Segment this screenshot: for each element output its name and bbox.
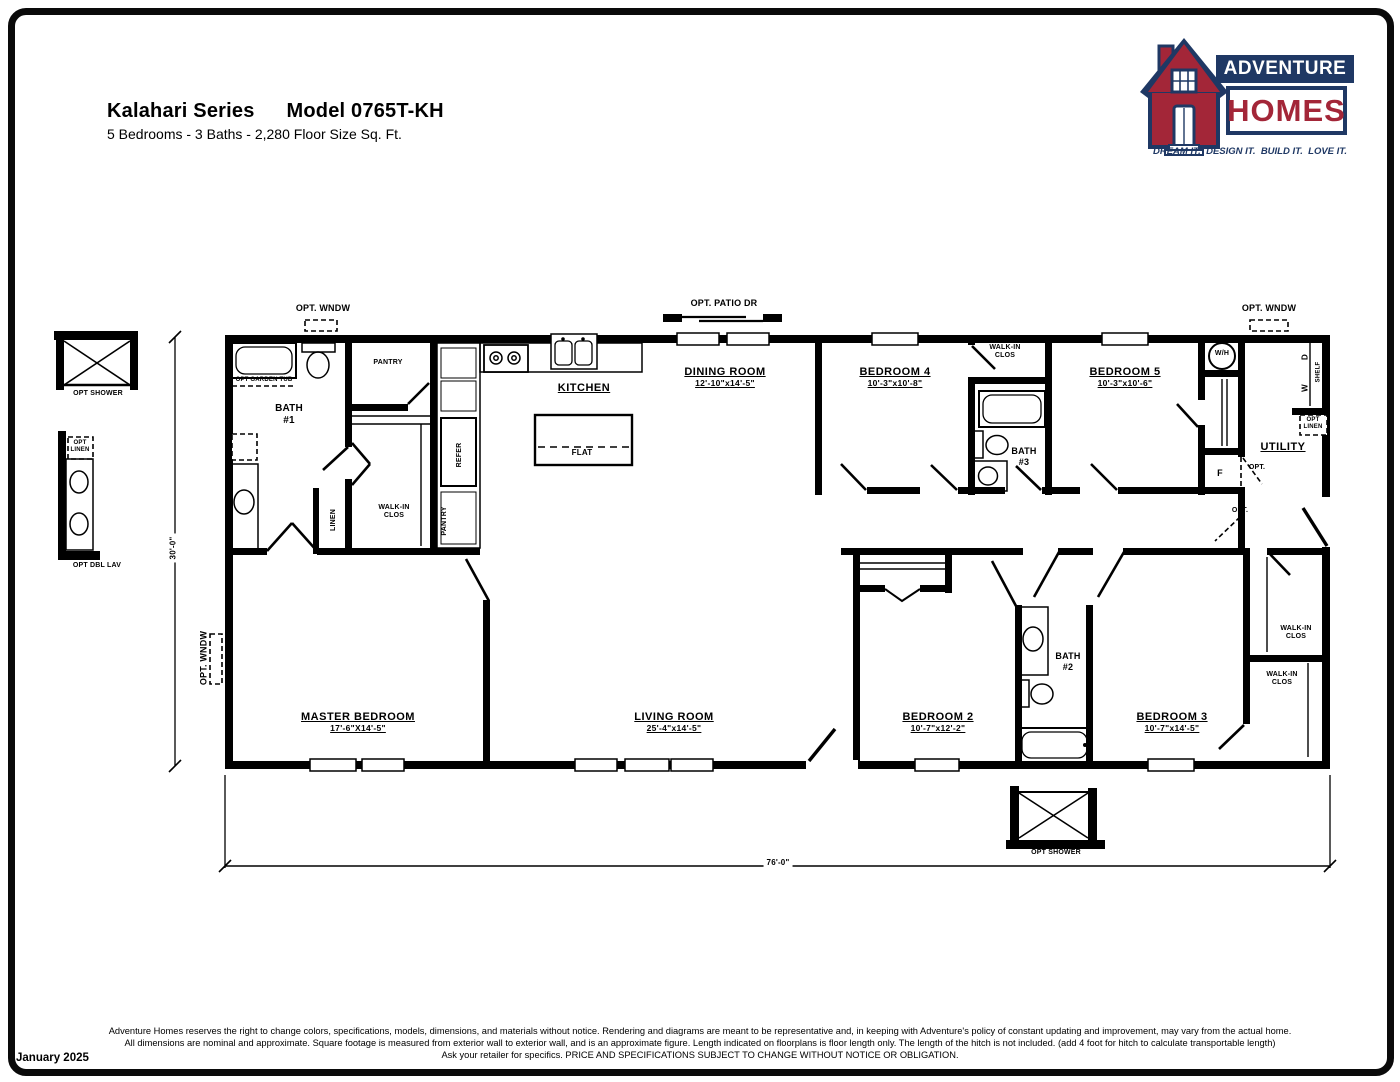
pantry-vertical-label: PANTRY: [441, 506, 449, 535]
opt-shower-bottom-label: OPT SHOWER: [1031, 849, 1081, 857]
opt-wndw-label-top-right: OPT. WNDW: [1242, 303, 1296, 314]
walkin-clos-bed4-label: WALK-IN CLOS: [989, 344, 1020, 361]
bedroom3-label: BEDROOM 3 10'-7"x14'-5": [1136, 711, 1207, 733]
bedroom4-label: BEDROOM 4 10'-3"x10'-8": [859, 366, 930, 388]
depth-dimension-label: 30'-0": [168, 534, 177, 563]
kitchen-fixtures: [437, 334, 642, 548]
opt-linen-utility-label: OPT LINEN: [1304, 417, 1323, 431]
opt-dbl-lav-label: OPT DBL LAV: [73, 562, 121, 570]
flat-island-label: FLAT: [572, 448, 593, 457]
opt-linen-left-label: OPT LINEN: [71, 440, 90, 454]
patio-door-symbol: [663, 314, 782, 322]
tub3-icon: [979, 391, 1045, 427]
opt-wndw-label-top-left: OPT. WNDW: [296, 303, 350, 314]
shelf-label: SHELF: [1315, 362, 1322, 383]
pantry-label: PANTRY: [373, 359, 402, 367]
width-dimension-label: 76'-0": [764, 858, 793, 867]
bedroom2-label: BEDROOM 2 10'-7"x12'-2": [902, 711, 973, 733]
kitchen-sink-icon: [551, 334, 597, 369]
utility-label: UTILITY: [1260, 441, 1305, 453]
walkin-clos-upper-label: WALK-IN CLOS: [1280, 625, 1311, 642]
tub2-icon: [1018, 728, 1091, 762]
walkin-clos-master-label: WALK-IN CLOS: [378, 504, 409, 521]
opt-garden-tub-label: OPT GARDEN TUB: [236, 377, 293, 384]
living-room-label: LIVING ROOM 25'-4"x14'-5": [634, 711, 713, 733]
dining-room-label: DINING ROOM 12'-10"x14'-5": [684, 366, 765, 388]
dryer-label: D: [1300, 354, 1309, 360]
opt-patio-door-label: OPT. PATIO DR: [691, 298, 758, 309]
island-icon: [535, 415, 632, 465]
revision-date: January 2025: [16, 1052, 89, 1064]
dbl-lav-icon: [66, 459, 93, 550]
bath3-label: BATH #3: [1011, 446, 1036, 467]
toilet1-icon: [302, 343, 335, 352]
furnace-label: F: [1217, 468, 1223, 479]
bedroom5-label: BEDROOM 5 10'-3"x10'-6": [1089, 366, 1160, 388]
bath1-label: BATH #1: [275, 403, 303, 427]
floorplan-drawing: [0, 0, 1400, 1082]
disclaimer-line3: Ask your retailer for specifics. PRICE A…: [85, 1050, 1315, 1062]
opt-shower-left-label: OPT SHOWER: [73, 390, 123, 398]
opt-door-label-1: OPT.: [1249, 464, 1265, 472]
dimension-lines: [169, 331, 1336, 872]
water-heater-label: W/H: [1215, 350, 1229, 358]
opt-wndw-label-left: OPT. WNDW: [199, 631, 210, 685]
door-gaps: [806, 497, 1331, 770]
bath2-label: BATH #2: [1055, 651, 1080, 672]
walkin-clos-lower-label: WALK-IN CLOS: [1266, 671, 1297, 688]
washer-label: W: [1300, 384, 1309, 392]
opt-door-label-2: OPT.: [1232, 507, 1248, 515]
disclaimer-line2: All dimensions are nominal and approxima…: [85, 1038, 1315, 1050]
master-bedroom-label: MASTER BEDROOM 17'-6"X14'-5": [301, 711, 415, 733]
disclaimer: Adventure Homes reserves the right to ch…: [85, 1026, 1315, 1062]
kitchen-label: KITCHEN: [558, 382, 610, 394]
disclaimer-line1: Adventure Homes reserves the right to ch…: [85, 1026, 1315, 1038]
linen-label: LINEN: [330, 509, 338, 531]
refer-label: REFER: [456, 443, 464, 468]
